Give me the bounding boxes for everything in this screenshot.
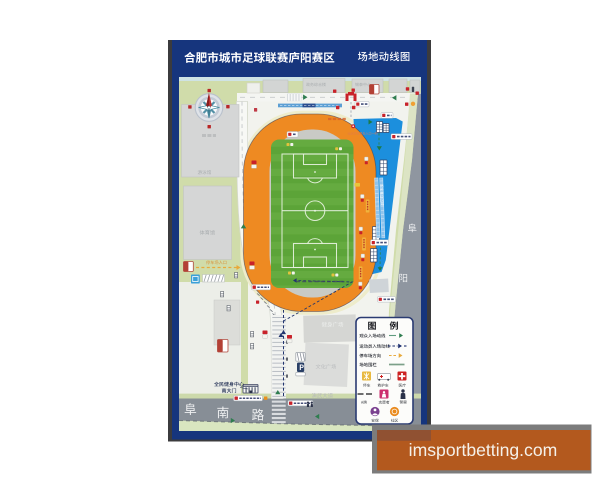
svg-text:imsportbetting.com: imsportbetting.com (409, 440, 558, 460)
